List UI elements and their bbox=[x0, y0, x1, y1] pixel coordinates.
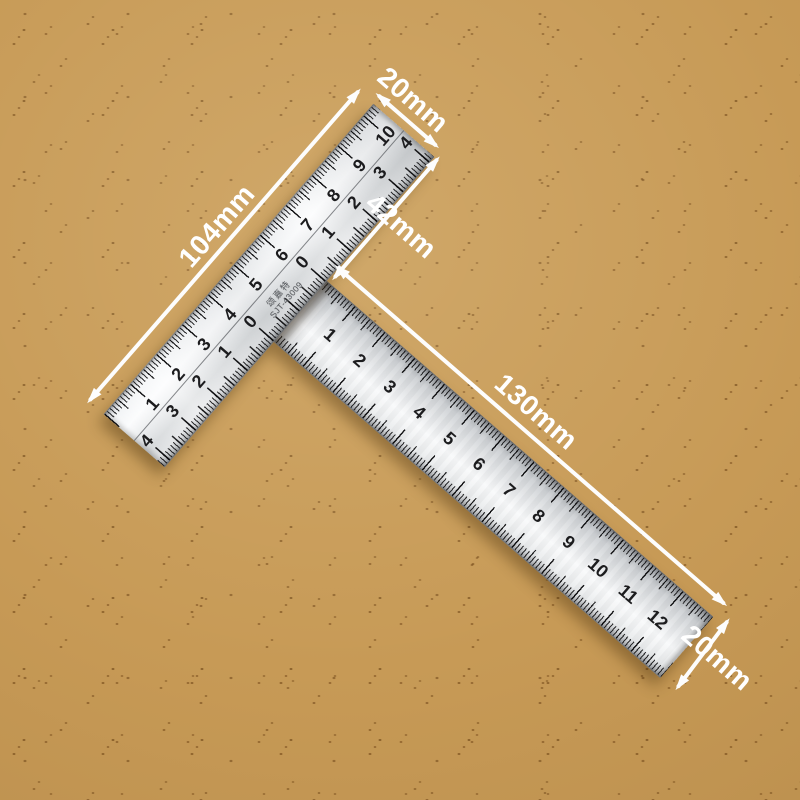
scale-number: 5 bbox=[438, 427, 459, 449]
scale-number: 1 bbox=[317, 222, 339, 243]
scale-number: 10 bbox=[371, 122, 400, 151]
scale-number: 4 bbox=[395, 132, 417, 153]
scale-number: 11 bbox=[614, 580, 642, 608]
scale-number: 8 bbox=[323, 185, 345, 206]
scale-number: 3 bbox=[193, 334, 215, 355]
blade-left-cm-ticks bbox=[273, 326, 673, 678]
scale-number: 1 bbox=[319, 324, 340, 346]
scale-number: 1 bbox=[214, 341, 236, 362]
scale-number: 3 bbox=[379, 375, 400, 397]
scale-number: 9 bbox=[557, 531, 578, 553]
blade-right-halfcm-ticks bbox=[315, 280, 712, 628]
scale-number: 4 bbox=[219, 304, 241, 325]
brand-marking: 颂嘉特 SJT-43009 bbox=[260, 273, 305, 320]
scale-number: 6 bbox=[271, 245, 293, 266]
scale-number: 2 bbox=[349, 349, 370, 371]
t-square-ruler: 12345678910 43210 01234 颂嘉特 SJT-43009 12… bbox=[104, 104, 800, 800]
scale-number: 2 bbox=[167, 364, 189, 385]
scale-number: 3 bbox=[369, 162, 391, 183]
scale-number: 0 bbox=[291, 252, 313, 273]
scale-number: 4 bbox=[136, 431, 158, 452]
scale-number: 0 bbox=[239, 311, 261, 332]
scale-number: 8 bbox=[528, 505, 549, 527]
scale-number: 7 bbox=[498, 479, 519, 501]
scale-number: 6 bbox=[468, 453, 489, 475]
scale-number: 7 bbox=[297, 215, 319, 236]
leather-background: 12345678910 43210 01234 颂嘉特 SJT-43009 12… bbox=[0, 0, 800, 800]
scale-number: 12 bbox=[643, 605, 672, 634]
scale-number: 5 bbox=[245, 274, 267, 295]
scale-number: 10 bbox=[583, 554, 612, 583]
blade-ruler: 123456789101112 bbox=[272, 279, 713, 677]
scale-number: 2 bbox=[188, 371, 210, 392]
blade-right-mm-ticks bbox=[319, 280, 713, 624]
blade-right-cm-ticks bbox=[312, 280, 712, 632]
scale-number: 4 bbox=[408, 401, 429, 423]
scale-number: 1 bbox=[141, 394, 163, 415]
scale-number: 9 bbox=[349, 155, 371, 176]
scale-number: 3 bbox=[162, 401, 184, 422]
